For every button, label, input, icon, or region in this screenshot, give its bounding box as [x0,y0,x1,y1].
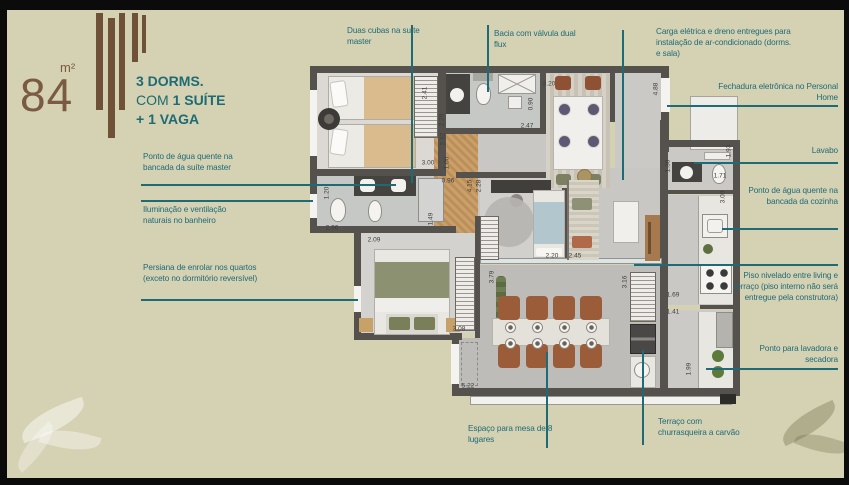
callout-agua-quente-cozinha: Ponto de água quente na bancada da cozin… [748,186,838,208]
bed2-blanket [375,262,449,298]
dim-label: 5.22 [462,383,475,390]
callout-persiana-enrolar: Persiana de enrolar nos quartos (exceto … [143,263,258,285]
dim-label: 3.16 [622,276,629,289]
area-value: 84 [20,68,73,122]
title-line1: 3 DORMS. [136,73,204,89]
callout-carga-eletrica: Carga elétrica e dreno entregues para in… [656,27,796,59]
bed2-pillow [389,317,410,330]
callout-lavabo: Lavabo [738,146,838,157]
window-bath [310,194,317,218]
laundry-plant [712,350,724,362]
dining-chair [585,76,601,90]
plate-icon [559,322,570,333]
dim-label: 3.00 [422,160,435,167]
dim-label: 3.20 [543,81,556,88]
frame-top [0,0,849,10]
bath2-sink [450,88,464,102]
callout-line-mesa-8-lugares [546,352,548,448]
dining-chair [555,76,571,90]
plate-icon [586,322,597,333]
dining-plate [587,103,600,116]
suite-bed-2-blanket [364,125,415,167]
title-line2-prefix: COM [136,92,173,108]
parapet-corner [720,394,736,404]
dim-label: 0.96 [442,178,455,185]
dim-label: 3.08 [453,326,466,333]
callout-agua-quente-suite: Ponto de água quente na bancada da suíte… [143,152,255,174]
dim-label: 2.62 [440,133,447,146]
sofa-cushion-green [572,198,592,210]
frame-left [0,0,7,485]
dim-label: 4.15 [467,180,474,193]
living-sofa [567,180,599,260]
bed3-blanket [534,202,564,244]
page-title: 3 DORMS. COM 1 SUÍTE + 1 VAGA [136,72,225,129]
kitchen-sink-basin [707,219,723,233]
callout-line-duas-cubas [411,25,413,183]
wall [733,140,740,396]
callout-fechadura-eletronica: Fechadura eletrônica no Personal Home [712,82,838,104]
laundry-appliance [716,312,733,348]
callout-line-fechadura-eletronica [667,105,838,107]
wall [452,388,740,396]
living-coffee-table [613,201,639,243]
bed2-wardrobe [455,257,475,331]
callout-line-lavabo [694,162,838,164]
suite-wardrobe [414,76,438,138]
terrace-chair [553,296,575,320]
dim-label: 1.00 [444,157,451,170]
dining-plate [558,103,571,116]
callout-line-piso-nivelado [634,264,838,266]
dim-label: 1.20 [324,187,331,200]
terrace-side-opening [451,344,459,384]
bath2-washbasin [508,96,522,109]
terrace-slider-track [461,342,478,386]
dim-label: 1.30 [665,160,672,173]
callout-mesa-8-lugares: Espaço para mesa de 8 lugares [468,424,576,446]
floorplan-page: 84 m² 3 DORMS. COM 1 SUÍTE + 1 VAGA [0,0,849,485]
suite-bath-sink-2 [391,179,406,192]
dim-label: 2.29 [439,114,446,127]
bed2-fold [375,298,449,312]
callout-line-agua-quente-suite [141,184,396,186]
window-suite [310,90,317,156]
callout-bacia-dual-flux: Bacia com válvula dual flux [494,29,586,51]
suite-bath-bidet [368,200,382,222]
callout-line-bacia-dual-flux [487,25,489,92]
dim-label: 1.69 [667,292,680,299]
suite-bath-toilet [330,198,346,222]
frame-right [844,0,849,485]
lavabo-sink [680,166,693,179]
wall [610,72,615,122]
plate-icon [532,338,543,349]
callout-terraco-churrasqueira: Terraço com churrasqueira a carvão [658,417,750,439]
dim-label: 4.88 [653,83,660,96]
plate-icon [586,338,597,349]
callout-line-terraco-churrasqueira [642,350,644,445]
bath2-toilet [476,83,491,105]
frame-bottom [0,478,849,485]
wall [310,169,446,176]
area-unit: m² [60,60,75,75]
dim-label: 3.79 [489,271,496,284]
dining-plate [587,135,600,148]
title-line2-bold: 1 SUÍTE [173,92,226,108]
terrace-cabinet [630,272,656,322]
kitchen-plant [703,244,713,254]
dim-label: 1.41 [667,309,680,316]
suite-bed-1-blanket [364,77,415,119]
dim-label: 1.93 [726,145,733,158]
dim-label: 2.45 [569,253,582,260]
callout-piso-nivelado: Piso nivelado entre living e terraço (pi… [726,271,838,303]
bath2-toilet-tank [473,73,493,81]
callout-line-iluminacao-banheiro [141,200,313,202]
callout-iluminacao-banheiro: Iluminação e ventilação naturais no banh… [143,205,255,227]
plate-icon [559,338,570,349]
bath2-shower-box [498,74,536,94]
dim-label: 3.00 [720,191,727,204]
tv-slot [648,222,651,254]
wall [700,305,733,309]
dim-label: 2.41 [422,87,429,100]
plate-icon [532,322,543,333]
bed3-wardrobe [480,216,499,260]
bed2-pillow [414,317,435,330]
suite-bath-sink-1 [360,179,375,192]
dim-label: 2.20 [546,253,559,260]
dim-label: 2.09 [368,237,381,244]
entry-door-opening [661,78,670,112]
dining-plate [558,135,571,148]
callout-lavadora-secadora: Ponto para lavadora e secadora [748,344,838,366]
plate-icon [505,338,516,349]
dim-label: 1.49 [428,213,435,226]
title-line3: + 1 VAGA [136,111,199,127]
suite-bed-1-pillow [329,80,348,108]
suite-side-table-top [324,114,334,124]
plate-icon [505,322,516,333]
bed2-nightstand [359,318,373,332]
dim-label: 1.99 [686,363,693,376]
terrace-chair [580,296,602,320]
terrace-chair [526,296,548,320]
dim-label: 1.71 [714,173,727,180]
callout-line-carga-eletrica [622,30,624,180]
dim-label: 2.96 [326,225,339,232]
sofa-cushion-rust [572,236,592,248]
callout-line-lavadora-secadora [706,368,838,370]
terrace-parapet [470,396,732,405]
dim-label: 2.28 [476,180,483,193]
terrace-chair [498,296,520,320]
dim-label: 0.90 [528,98,535,111]
callout-line-persiana-enrolar [141,299,358,301]
callout-line-agua-quente-cozinha [722,228,838,230]
callout-duas-cubas: Duas cubas na suíte master [347,26,427,48]
dim-label: 2.47 [521,123,534,130]
